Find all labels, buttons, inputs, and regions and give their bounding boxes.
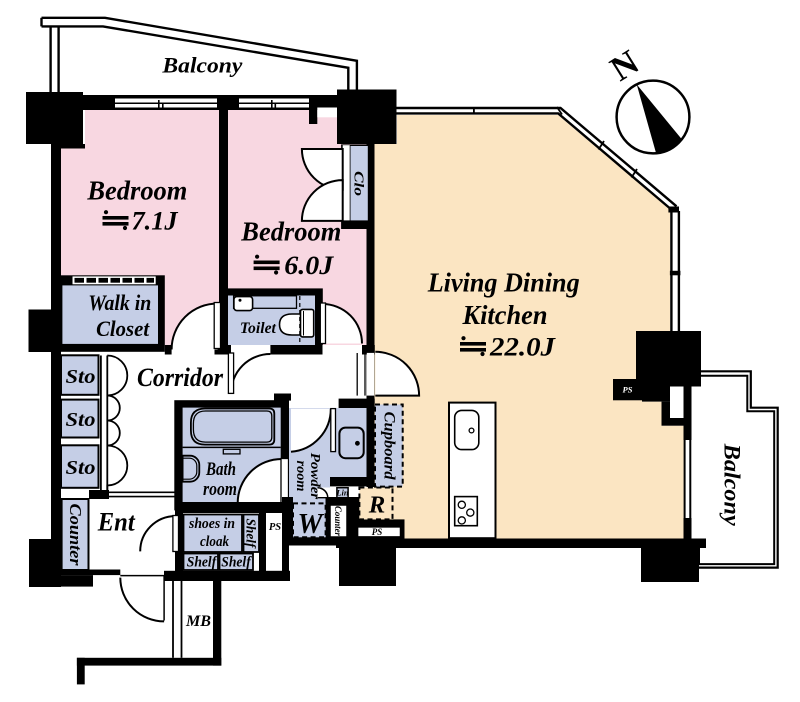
svg-text:MB: MB [185, 613, 211, 630]
svg-text:Clo: Clo [351, 171, 366, 196]
svg-text:7.1J: 7.1J [132, 207, 179, 236]
svg-text:6.0J: 6.0J [284, 251, 334, 280]
svg-text:Shelf: Shelf [221, 555, 253, 571]
svg-text:Balcony: Balcony [161, 53, 243, 78]
svg-text:Counter: Counter [66, 504, 85, 566]
svg-text:Powder: Powder [308, 453, 323, 500]
svg-text:Walk in: Walk in [88, 290, 151, 315]
svg-text:Sto: Sto [66, 409, 96, 431]
svg-text:Shelf: Shelf [187, 555, 219, 571]
svg-text:Bath: Bath [205, 459, 236, 480]
svg-text:Bedroom: Bedroom [240, 216, 341, 246]
svg-text:PS: PS [623, 385, 633, 395]
svg-text:Kitchen: Kitchen [462, 300, 548, 330]
svg-text:R: R [368, 492, 386, 519]
svg-text:cloak: cloak [200, 534, 229, 550]
svg-text:Sto: Sto [66, 457, 96, 479]
svg-text:W: W [298, 509, 325, 540]
svg-text:Shelf: Shelf [243, 519, 258, 549]
svg-text:Ent: Ent [97, 508, 136, 537]
svg-text:PS: PS [372, 527, 383, 537]
svg-text:22.0J: 22.0J [489, 333, 556, 362]
svg-text:Bedroom: Bedroom [86, 175, 187, 205]
svg-text:Sto: Sto [66, 366, 96, 388]
svg-text:PS: PS [269, 522, 281, 533]
svg-text:Balcony: Balcony [720, 443, 745, 527]
svg-text:shoes in: shoes in [188, 516, 235, 532]
svg-text:Lin: Lin [335, 488, 349, 498]
svg-text:Counter: Counter [333, 506, 343, 536]
svg-text:Corridor: Corridor [137, 363, 224, 392]
svg-text:Living Dining: Living Dining [427, 268, 580, 298]
svg-text:room: room [294, 461, 309, 492]
svg-text:Toilet: Toilet [240, 320, 277, 337]
svg-text:Closet: Closet [96, 316, 150, 341]
svg-text:room: room [203, 479, 237, 500]
svg-text:Cupboard: Cupboard [381, 412, 398, 480]
